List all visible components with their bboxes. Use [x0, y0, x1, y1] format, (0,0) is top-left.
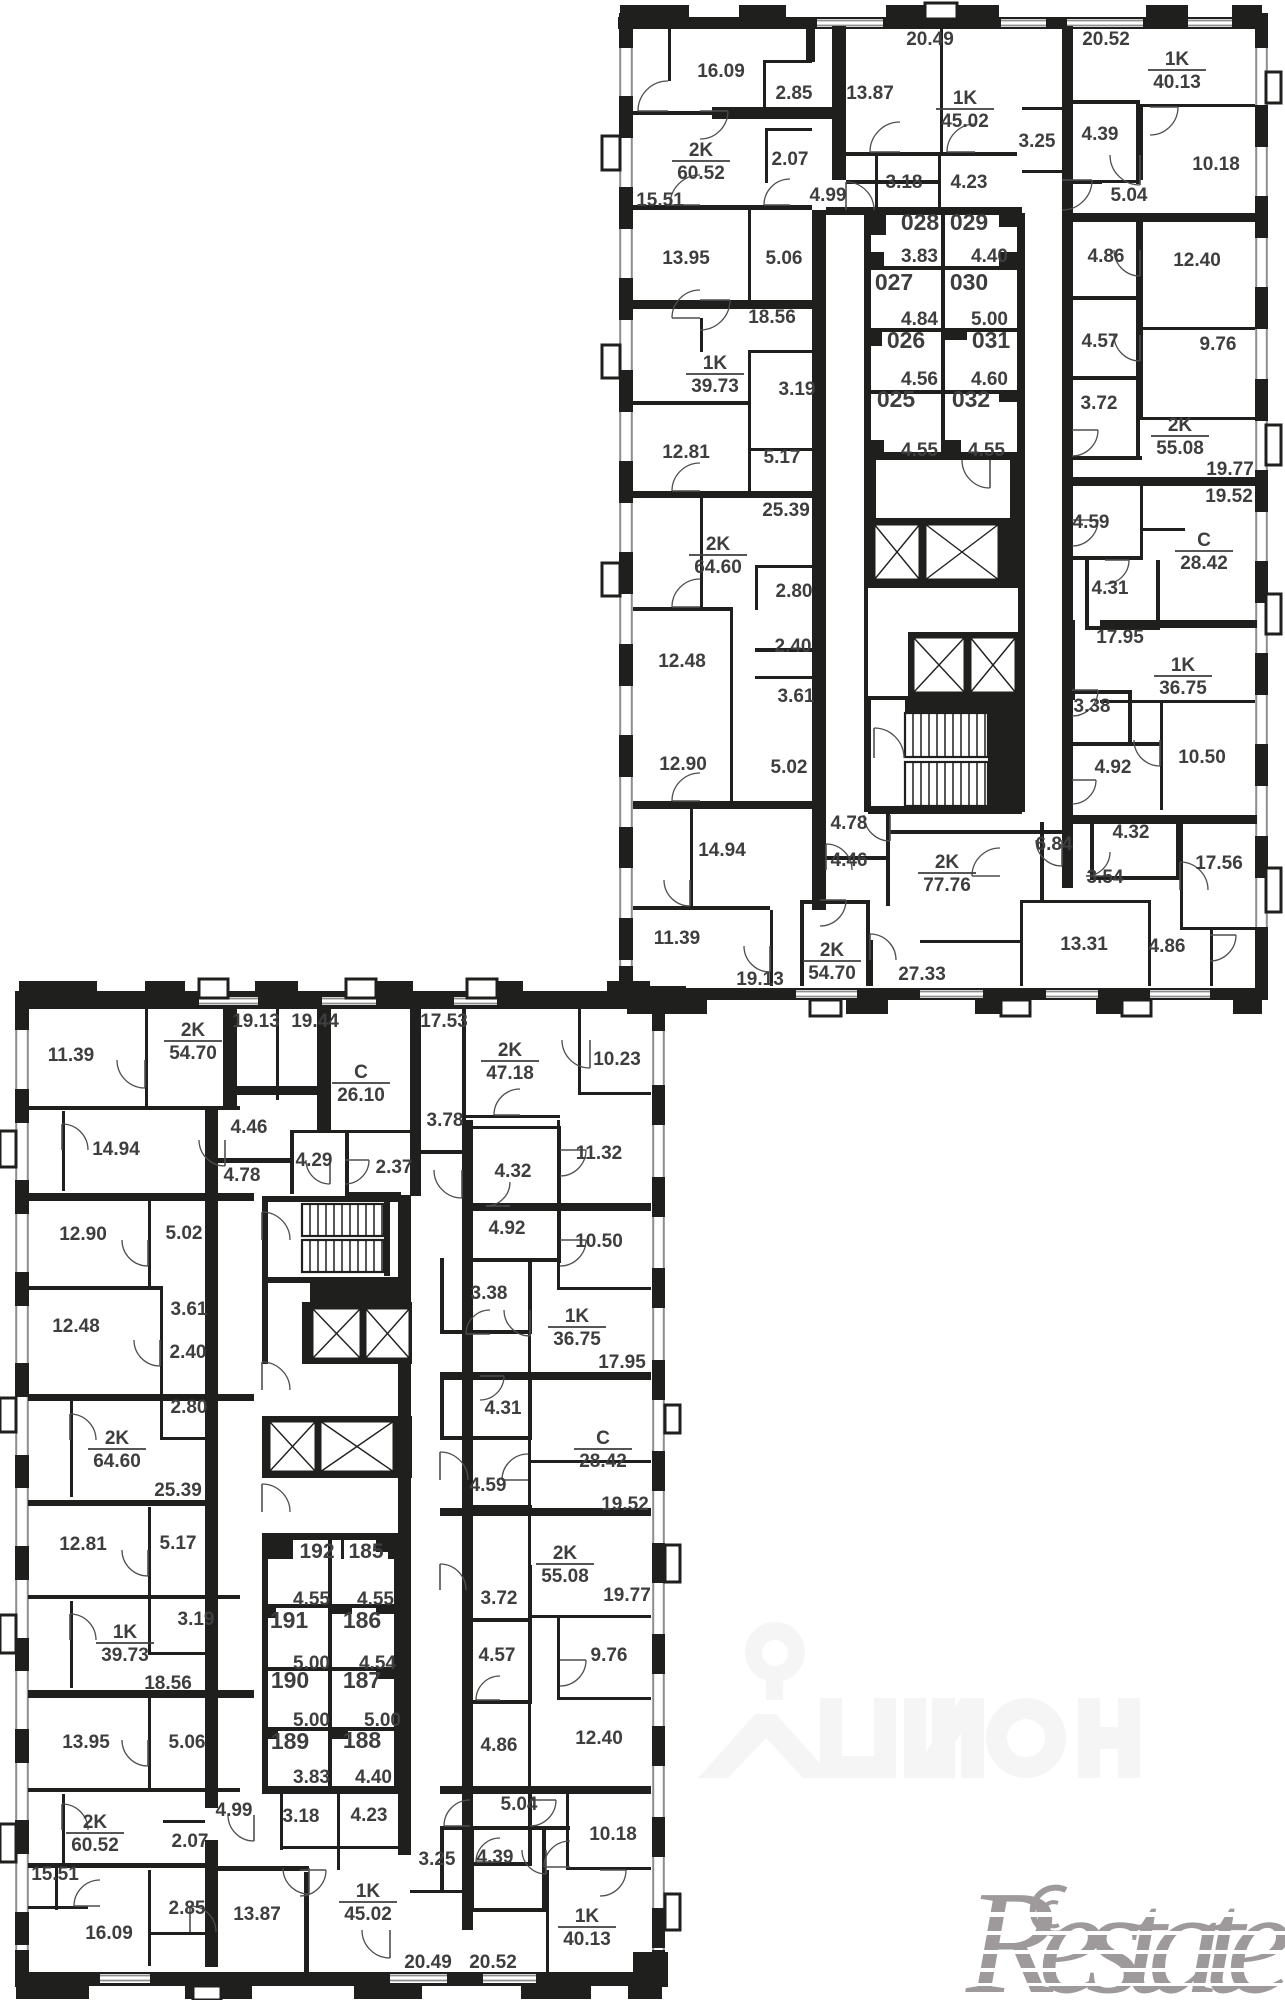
svg-text:4.57: 4.57: [479, 1645, 516, 1666]
svg-text:2K: 2K: [105, 1428, 130, 1449]
svg-text:9.76: 9.76: [1200, 334, 1237, 355]
svg-text:19.13: 19.13: [232, 1011, 280, 1032]
svg-text:186: 186: [343, 1607, 381, 1633]
svg-text:031: 031: [972, 327, 1011, 353]
svg-text:20.49: 20.49: [906, 29, 954, 50]
svg-text:025: 025: [877, 386, 916, 412]
svg-text:2K: 2K: [689, 140, 714, 161]
svg-text:11.39: 11.39: [48, 1045, 95, 1066]
svg-text:3.18: 3.18: [283, 1806, 320, 1827]
svg-text:17.53: 17.53: [420, 1011, 468, 1032]
svg-text:12.81: 12.81: [59, 1534, 107, 1555]
svg-text:2.80: 2.80: [776, 581, 813, 602]
svg-text:1K: 1K: [1165, 49, 1190, 70]
svg-text:17.95: 17.95: [598, 1352, 646, 1373]
svg-text:18.56: 18.56: [144, 1673, 192, 1694]
svg-text:4.31: 4.31: [1092, 578, 1129, 599]
svg-text:1K: 1K: [575, 1906, 600, 1927]
svg-text:2K: 2K: [181, 1020, 206, 1041]
svg-text:3.25: 3.25: [419, 1849, 456, 1870]
svg-text:60.52: 60.52: [677, 163, 725, 184]
svg-text:19.77: 19.77: [603, 1585, 651, 1606]
svg-text:20.52: 20.52: [1082, 29, 1130, 50]
svg-text:3.38: 3.38: [471, 1283, 508, 1304]
svg-text:2K: 2K: [706, 534, 731, 555]
svg-text:3.78: 3.78: [427, 1110, 464, 1131]
svg-text:1K: 1K: [953, 88, 978, 109]
svg-text:3.72: 3.72: [1081, 393, 1118, 414]
svg-text:1K: 1K: [1171, 655, 1196, 676]
svg-text:C: C: [596, 1428, 610, 1449]
svg-text:4.55: 4.55: [968, 440, 1005, 461]
svg-text:18.56: 18.56: [748, 307, 796, 328]
svg-text:4.32: 4.32: [1113, 822, 1150, 843]
svg-text:12.48: 12.48: [658, 651, 706, 672]
svg-text:4.39: 4.39: [1082, 124, 1119, 145]
svg-text:1K: 1K: [703, 353, 728, 374]
svg-text:190: 190: [271, 1667, 309, 1693]
svg-text:3.18: 3.18: [886, 172, 923, 193]
svg-text:27.33: 27.33: [898, 964, 946, 985]
svg-text:5.06: 5.06: [766, 248, 803, 269]
svg-text:2.40: 2.40: [775, 636, 812, 657]
svg-text:5.17: 5.17: [764, 447, 801, 468]
svg-text:185: 185: [348, 1540, 383, 1563]
svg-text:4.46: 4.46: [831, 850, 868, 871]
svg-text:2.85: 2.85: [776, 83, 813, 104]
svg-text:4.57: 4.57: [1082, 331, 1119, 352]
svg-text:4.59: 4.59: [1073, 512, 1110, 533]
svg-text:12.48: 12.48: [52, 1316, 100, 1337]
svg-text:17.95: 17.95: [1096, 627, 1144, 648]
svg-text:14.94: 14.94: [698, 840, 746, 861]
svg-text:1K: 1K: [113, 1622, 138, 1643]
svg-text:10.18: 10.18: [589, 1824, 637, 1845]
svg-text:19.44: 19.44: [291, 1011, 339, 1032]
svg-text:10.50: 10.50: [575, 1231, 623, 1252]
svg-text:4.40: 4.40: [355, 1767, 392, 1788]
svg-text:10.23: 10.23: [593, 1049, 641, 1070]
svg-text:191: 191: [270, 1607, 309, 1633]
svg-text:13.95: 13.95: [62, 1732, 110, 1753]
svg-text:10.50: 10.50: [1178, 747, 1226, 768]
svg-text:3.61: 3.61: [171, 1299, 208, 1320]
svg-text:13.31: 13.31: [1060, 934, 1108, 955]
svg-text:C: C: [1197, 530, 1211, 551]
svg-text:3.83: 3.83: [293, 1767, 330, 1788]
svg-text:3.54: 3.54: [1087, 867, 1124, 888]
svg-text:029: 029: [950, 209, 988, 235]
svg-text:4.46: 4.46: [231, 1117, 268, 1138]
svg-text:19.77: 19.77: [1206, 459, 1254, 480]
svg-text:030: 030: [950, 269, 988, 295]
svg-text:4.99: 4.99: [810, 185, 847, 206]
svg-text:4.55: 4.55: [901, 440, 938, 461]
svg-text:188: 188: [343, 1727, 382, 1753]
svg-text:028: 028: [901, 209, 940, 235]
svg-text:3.61: 3.61: [778, 686, 815, 707]
svg-text:4.29: 4.29: [296, 1150, 333, 1171]
svg-text:2K: 2K: [83, 1812, 108, 1833]
svg-text:45.02: 45.02: [941, 111, 989, 132]
svg-text:12.90: 12.90: [59, 1224, 107, 1245]
svg-text:3.25: 3.25: [1019, 131, 1056, 152]
svg-text:026: 026: [887, 327, 925, 353]
svg-text:4.39: 4.39: [477, 1847, 514, 1868]
svg-text:15.51: 15.51: [31, 1864, 79, 1885]
svg-text:47.18: 47.18: [486, 1063, 534, 1084]
svg-text:189: 189: [271, 1728, 309, 1754]
svg-text:77.76: 77.76: [923, 875, 971, 896]
svg-text:19.52: 19.52: [1205, 486, 1253, 507]
svg-text:12.81: 12.81: [662, 442, 710, 463]
svg-text:2K: 2K: [498, 1040, 523, 1061]
svg-text:4.92: 4.92: [1095, 757, 1132, 778]
svg-text:64.60: 64.60: [93, 1451, 141, 1472]
svg-text:3.19: 3.19: [178, 1609, 215, 1630]
svg-text:26.10: 26.10: [337, 1085, 385, 1106]
svg-text:64.60: 64.60: [694, 557, 742, 578]
svg-text:5.04: 5.04: [1111, 185, 1148, 206]
svg-text:2K: 2K: [935, 852, 960, 873]
svg-text:5.02: 5.02: [166, 1223, 203, 1244]
svg-text:15.51: 15.51: [636, 190, 684, 211]
svg-text:4.78: 4.78: [224, 1165, 261, 1186]
svg-text:17.56: 17.56: [1195, 853, 1243, 874]
svg-text:55.08: 55.08: [1156, 438, 1204, 459]
svg-text:032: 032: [952, 386, 990, 412]
svg-text:55.08: 55.08: [541, 1566, 589, 1587]
svg-text:2.07: 2.07: [772, 149, 809, 170]
svg-text:13.87: 13.87: [233, 1904, 281, 1925]
svg-text:16.09: 16.09: [85, 1923, 133, 1944]
svg-text:20.49: 20.49: [404, 1952, 452, 1973]
svg-text:25.39: 25.39: [762, 500, 810, 521]
svg-text:5.17: 5.17: [160, 1533, 197, 1554]
svg-text:25.39: 25.39: [154, 1480, 202, 1501]
svg-text:2.40: 2.40: [170, 1342, 207, 1363]
svg-text:10.18: 10.18: [1192, 154, 1240, 175]
svg-text:4.40: 4.40: [971, 246, 1008, 267]
svg-text:4.59: 4.59: [470, 1475, 507, 1496]
svg-text:14.94: 14.94: [92, 1139, 140, 1160]
svg-text:4.31: 4.31: [485, 1398, 522, 1419]
svg-text:36.75: 36.75: [1159, 678, 1207, 699]
svg-text:12.40: 12.40: [575, 1728, 623, 1749]
svg-text:192: 192: [299, 1540, 334, 1563]
svg-text:40.13: 40.13: [1153, 72, 1201, 93]
svg-text:2.07: 2.07: [172, 1831, 209, 1852]
svg-text:6.84: 6.84: [1036, 834, 1073, 855]
svg-text:45.02: 45.02: [344, 1904, 392, 1925]
svg-text:12.40: 12.40: [1173, 250, 1221, 271]
svg-text:28.42: 28.42: [1180, 553, 1228, 574]
svg-text:4.78: 4.78: [831, 813, 868, 834]
svg-text:3.38: 3.38: [1074, 696, 1111, 717]
svg-text:36.75: 36.75: [553, 1329, 601, 1350]
svg-text:13.87: 13.87: [846, 83, 894, 104]
svg-text:4.23: 4.23: [351, 1805, 388, 1826]
svg-text:54.70: 54.70: [808, 963, 856, 984]
svg-text:Restate: Restate: [965, 1861, 1285, 2000]
svg-text:19.13: 19.13: [736, 969, 784, 990]
svg-text:13.95: 13.95: [662, 248, 710, 269]
svg-text:54.70: 54.70: [169, 1043, 217, 1064]
svg-text:60.52: 60.52: [71, 1835, 119, 1856]
svg-text:3.19: 3.19: [779, 379, 816, 400]
svg-text:4.32: 4.32: [495, 1161, 532, 1182]
svg-text:4.23: 4.23: [951, 172, 988, 193]
svg-text:40.13: 40.13: [563, 1929, 611, 1950]
svg-text:2K: 2K: [1168, 415, 1193, 436]
svg-text:2K: 2K: [820, 940, 845, 961]
svg-text:2.37: 2.37: [376, 1157, 413, 1178]
svg-text:2K: 2K: [553, 1543, 578, 1564]
svg-text:16.09: 16.09: [697, 61, 745, 82]
svg-text:4.99: 4.99: [216, 1800, 253, 1821]
svg-text:3.72: 3.72: [481, 1588, 518, 1609]
svg-text:C: C: [354, 1062, 368, 1083]
svg-text:28.42: 28.42: [579, 1451, 627, 1472]
svg-text:20.52: 20.52: [469, 1952, 517, 1973]
svg-text:4.86: 4.86: [1088, 246, 1125, 267]
svg-text:1K: 1K: [565, 1306, 590, 1327]
svg-text:027: 027: [875, 269, 913, 295]
svg-text:3.83: 3.83: [901, 246, 938, 267]
svg-text:187: 187: [343, 1667, 381, 1693]
svg-text:39.73: 39.73: [691, 376, 739, 397]
svg-text:2.85: 2.85: [169, 1898, 206, 1919]
svg-text:4.92: 4.92: [489, 1218, 526, 1239]
svg-text:5.04: 5.04: [501, 1794, 538, 1815]
svg-text:2.80: 2.80: [171, 1397, 208, 1418]
svg-text:5.06: 5.06: [169, 1732, 206, 1753]
svg-text:4.86: 4.86: [481, 1735, 518, 1756]
svg-text:39.73: 39.73: [101, 1645, 149, 1666]
svg-text:12.90: 12.90: [659, 754, 707, 775]
svg-text:11.32: 11.32: [576, 1143, 623, 1164]
svg-text:5.02: 5.02: [771, 757, 808, 778]
svg-text:4.86: 4.86: [1149, 936, 1186, 957]
svg-text:1K: 1K: [356, 1881, 381, 1902]
svg-text:19.52: 19.52: [601, 1494, 649, 1515]
svg-text:11.39: 11.39: [654, 928, 701, 949]
svg-text:9.76: 9.76: [591, 1645, 628, 1666]
